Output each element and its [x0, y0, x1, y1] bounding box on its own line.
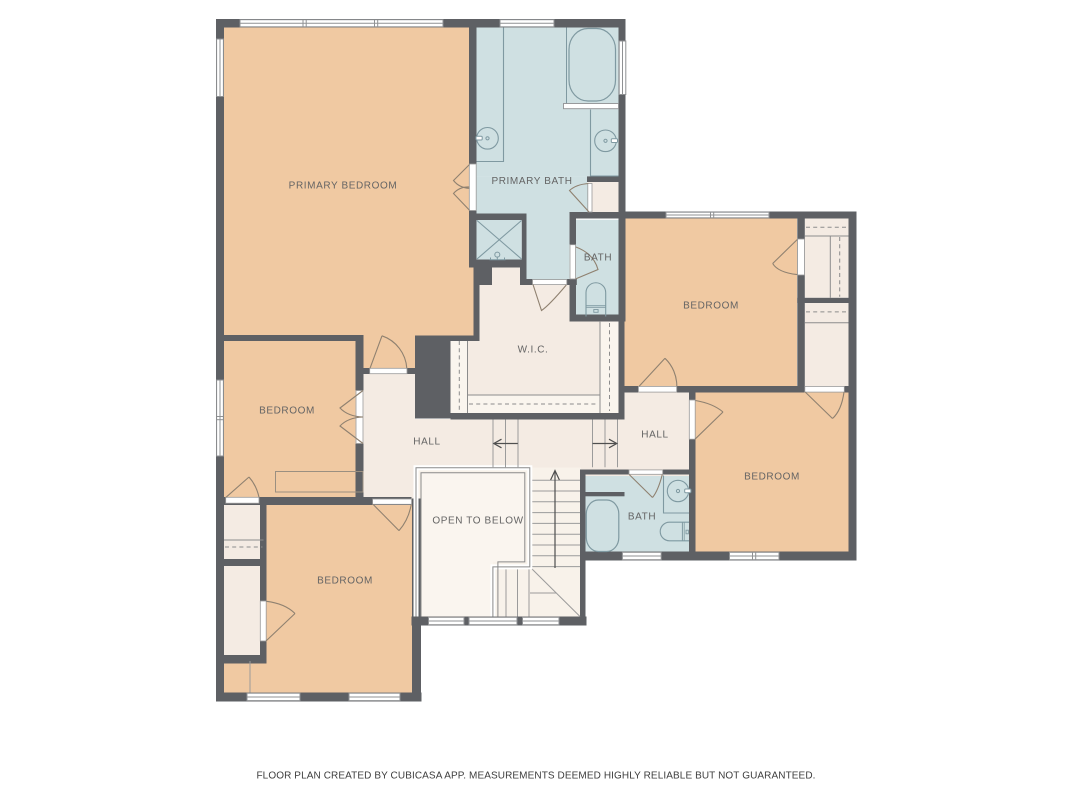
svg-text:W.I.C.: W.I.C.: [518, 345, 549, 356]
svg-text:BEDROOM: BEDROOM: [683, 301, 739, 312]
svg-text:BEDROOM: BEDROOM: [259, 406, 315, 417]
svg-text:HALL: HALL: [641, 430, 668, 441]
svg-text:BATH: BATH: [584, 253, 612, 264]
svg-text:OPEN TO BELOW: OPEN TO BELOW: [432, 516, 523, 527]
svg-text:FLOOR PLAN CREATED BY CUBICASA: FLOOR PLAN CREATED BY CUBICASA APP. MEAS…: [256, 770, 815, 781]
svg-text:BATH: BATH: [628, 512, 656, 523]
svg-text:PRIMARY BATH: PRIMARY BATH: [491, 176, 572, 187]
svg-text:BEDROOM: BEDROOM: [317, 576, 373, 587]
svg-text:BEDROOM: BEDROOM: [744, 472, 800, 483]
svg-text:PRIMARY BEDROOM: PRIMARY BEDROOM: [289, 181, 398, 192]
svg-text:HALL: HALL: [413, 437, 440, 448]
